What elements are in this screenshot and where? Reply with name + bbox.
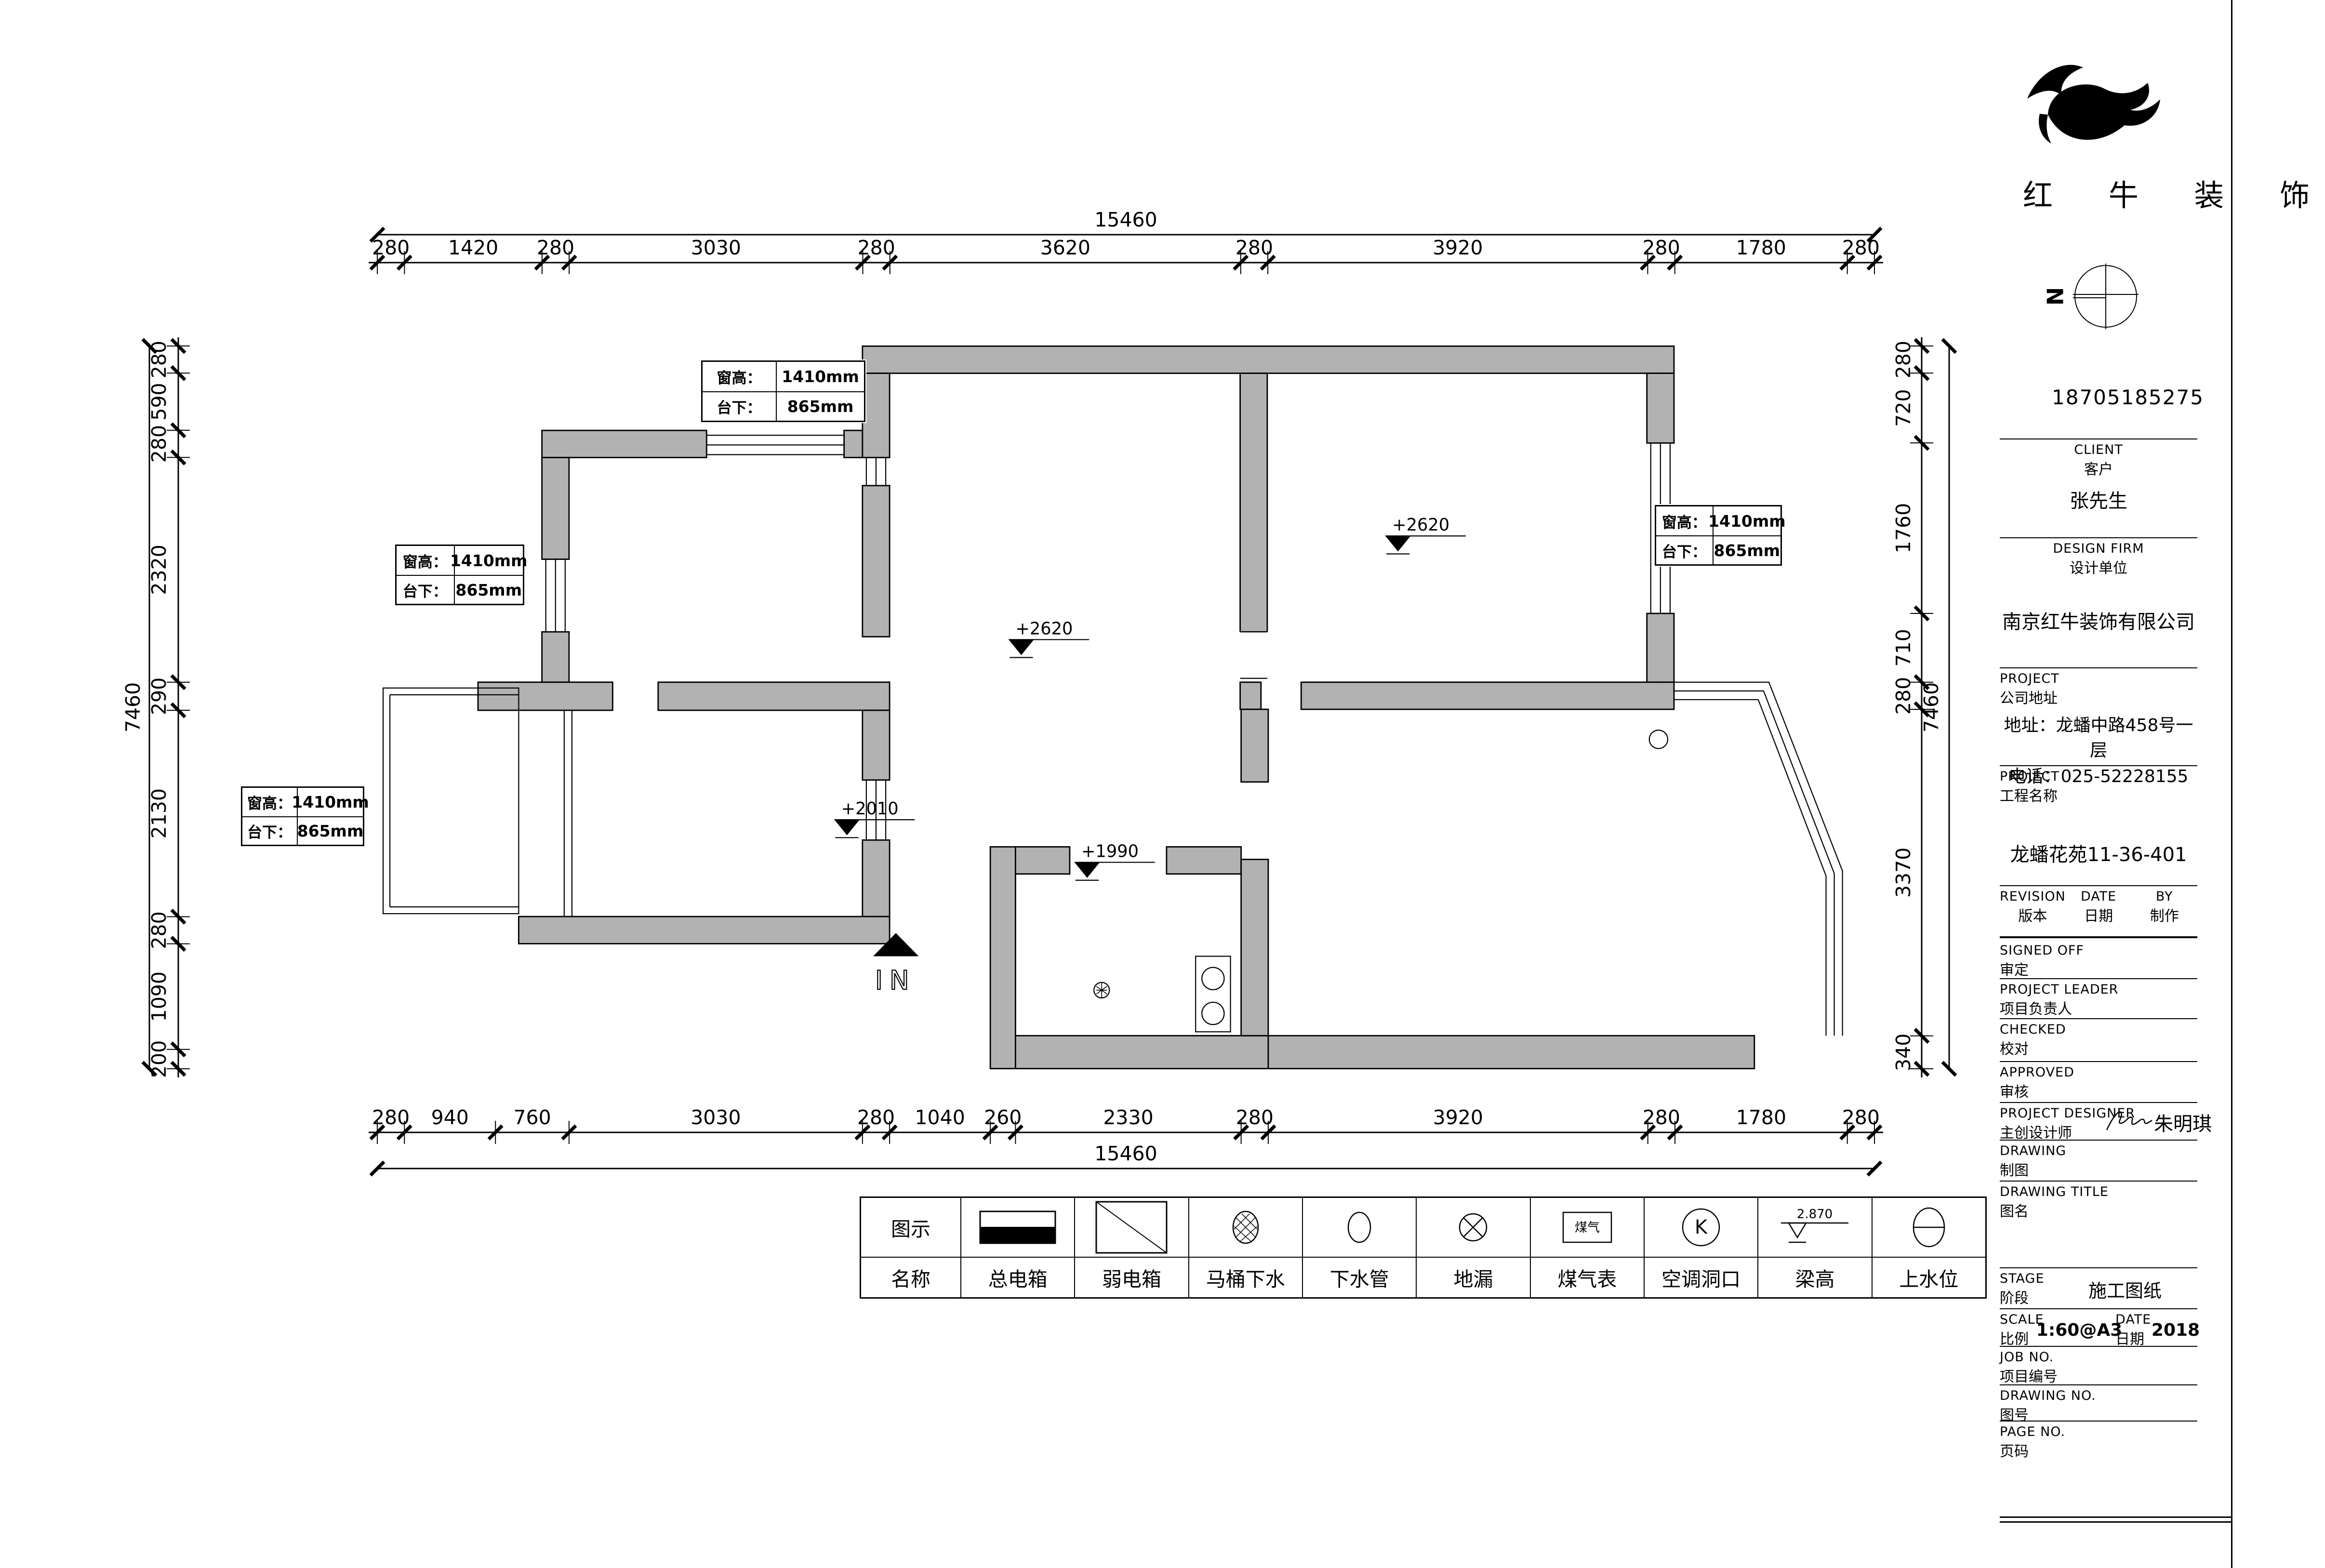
window-callout: 窗高：1410mm台下：865mm xyxy=(241,786,364,846)
titleblock-approved: APPROVED 审核 xyxy=(2000,1061,2197,1102)
dim-label: 280 xyxy=(1892,341,1915,378)
water-supply-icon xyxy=(1872,1198,1985,1257)
dim-label: 1420 xyxy=(448,236,498,259)
company-phone: 18705185275 xyxy=(2052,385,2204,409)
titleblock-job-no: JOB NO. 项目编号 xyxy=(2000,1346,2197,1384)
designer-signature xyxy=(2105,1106,2155,1135)
titleblock-checked: CHECKED 校对 xyxy=(2000,1018,2197,1061)
dim-label: 3370 xyxy=(1892,848,1915,898)
gas-meter-icon: 煤气 xyxy=(1530,1198,1644,1257)
legend-header-names: 名称 xyxy=(861,1257,960,1297)
dim-label: 3030 xyxy=(691,236,741,259)
sheet-right-border xyxy=(2231,0,2232,1568)
dim-label: 280 xyxy=(858,236,895,259)
svg-text:K: K xyxy=(1695,1216,1708,1238)
dim-label: 1780 xyxy=(1736,1106,1786,1129)
address-line1: 地址：龙蟠中路458号一层 xyxy=(2000,711,2197,761)
weak-electric-box-icon xyxy=(1074,1198,1188,1257)
dim-label: 2130 xyxy=(147,788,171,838)
titleblock-project-leader: PROJECT LEADER 项目负责人 xyxy=(2000,978,2197,1018)
titleblock-bottom-line xyxy=(2000,1516,2231,1518)
dim-label: 280 xyxy=(1842,1106,1880,1129)
dim-label: 3030 xyxy=(691,1106,741,1129)
window-callout: 窗高：1410mm台下：865mm xyxy=(1655,505,1782,566)
scale-value: 1:60@A3 xyxy=(2043,1312,2115,1348)
dim-label: 340 xyxy=(1892,1034,1915,1071)
callout-value: 865mm xyxy=(1714,536,1780,564)
callout-label: 台下： xyxy=(397,576,455,604)
callout-value: 865mm xyxy=(455,576,523,604)
dim-label: 290 xyxy=(147,678,171,715)
dim-label: 280 xyxy=(1643,1106,1680,1129)
dim-label: 280 xyxy=(1892,677,1915,715)
callout-label: 窗高： xyxy=(703,362,777,391)
dim-label: 1040 xyxy=(915,1106,965,1129)
north-letter: N xyxy=(2042,287,2068,306)
dim-label: 3920 xyxy=(1433,1106,1483,1129)
legend-item-name: 梁高 xyxy=(1757,1257,1871,1297)
design-firm-value: 南京红牛装饰有限公司 xyxy=(2000,606,2197,634)
dim-label: 280 xyxy=(1642,236,1680,259)
designer-name: 朱明琪 xyxy=(2154,1108,2212,1136)
dim-label: 3920 xyxy=(1433,236,1483,259)
dim-overall-label: 15460 xyxy=(1094,1142,1157,1165)
titleblock-scale-date: SCALE比例 1:60@A3 DATE日期 2018 xyxy=(2000,1308,2197,1346)
dim-label: 200 xyxy=(147,1040,171,1078)
svg-text:2.870: 2.870 xyxy=(1797,1207,1833,1222)
callout-value: 865mm xyxy=(777,392,864,421)
client-value: 张先生 xyxy=(2000,485,2197,513)
dim-label: 710 xyxy=(1892,629,1915,666)
callout-label: 台下： xyxy=(242,817,298,845)
callout-label: 窗高： xyxy=(397,546,455,575)
legend-header-icons: 图示 xyxy=(861,1198,960,1257)
titleblock-drawing-no: DRAWING NO. 图号 xyxy=(2000,1384,2197,1421)
dim-label: 720 xyxy=(1892,389,1915,427)
callout-value: 1410mm xyxy=(1714,506,1780,535)
callout-label: 窗高： xyxy=(1656,506,1714,535)
callout-label: 台下： xyxy=(703,392,777,421)
ac-hole-icon: K xyxy=(1644,1198,1757,1257)
titleblock-drawing: DRAWING 制图 xyxy=(2000,1140,2197,1181)
dim-label: 2330 xyxy=(1103,1106,1153,1129)
dim-overall-label: 15460 xyxy=(1094,208,1157,231)
drain-pipe-icon xyxy=(1302,1198,1416,1257)
project-name-value: 龙蟠花苑11-36-401 xyxy=(2000,839,2197,867)
dim-label: 280 xyxy=(1236,1106,1274,1129)
dim-label: 1090 xyxy=(147,971,171,1022)
dim-overall-label: 7460 xyxy=(1920,682,1943,732)
titleblock-page-no: PAGE NO. 页码 xyxy=(2000,1421,2197,1469)
dim-overall-label: 7460 xyxy=(121,682,145,732)
dim-label: 3620 xyxy=(1040,236,1090,259)
window-callout: 窗高：1410mm台下：865mm xyxy=(395,545,524,605)
titleblock-bottom-line2 xyxy=(2000,1521,2231,1523)
north-indicator-icon xyxy=(2072,263,2139,330)
dim-label: 1780 xyxy=(1736,236,1786,259)
callout-value: 1410mm xyxy=(777,362,864,391)
date-value: 2018 xyxy=(2154,1312,2197,1348)
callout-label: 台下： xyxy=(1656,536,1714,564)
dim-label: 940 xyxy=(431,1106,469,1129)
toilet-drain-icon xyxy=(1188,1198,1302,1257)
dim-label: 760 xyxy=(513,1106,551,1129)
floorplan-sheet: +2620+2620+2010+1990IN 15460280142028030… xyxy=(0,0,2325,1568)
dim-label: 280 xyxy=(147,911,171,949)
legend-item-name: 煤气表 xyxy=(1530,1257,1644,1297)
main-electric-box-icon xyxy=(960,1198,1074,1257)
legend-item-name: 空调洞口 xyxy=(1644,1257,1757,1297)
dim-label: 590 xyxy=(147,383,171,420)
callout-label: 窗高： xyxy=(242,788,298,816)
legend-item-name: 弱电箱 xyxy=(1074,1257,1188,1297)
dim-label: 1760 xyxy=(1892,503,1915,553)
legend-table: 图示煤气K2.870名称总电箱弱电箱马桶下水下水管地漏煤气表空调洞口梁高上水位 xyxy=(860,1196,1987,1299)
dim-label: 280 xyxy=(372,1106,410,1129)
callout-value: 865mm xyxy=(298,817,363,845)
legend-item-name: 地漏 xyxy=(1416,1257,1529,1297)
beam-height-icon: 2.870 xyxy=(1757,1198,1871,1257)
dim-label: 280 xyxy=(1842,236,1880,259)
dim-label: 280 xyxy=(372,236,410,259)
dim-label: 280 xyxy=(537,236,574,259)
dim-label: 280 xyxy=(857,1106,895,1129)
titleblock-client: CLIENT 客户 张先生 xyxy=(2000,439,2197,537)
floor-drain-icon xyxy=(1416,1198,1529,1257)
titleblock-project-name: PROJECT 工程名称 龙蟠花苑11-36-401 xyxy=(2000,765,2197,885)
titleblock-signed-off: SIGNED OFF 审定 xyxy=(2000,940,2197,978)
dim-label: 260 xyxy=(984,1106,1022,1129)
dim-label: 280 xyxy=(147,425,171,463)
callout-value: 1410mm xyxy=(298,788,363,816)
titleblock-revision-row: REVISION版本 DATE日期 BY制作 xyxy=(2000,885,2197,938)
titleblock-drawing-title: DRAWING TITLE 图名 xyxy=(2000,1181,2197,1267)
dim-label: 2320 xyxy=(147,545,171,595)
legend-item-name: 总电箱 xyxy=(960,1257,1074,1297)
legend-item-name: 马桶下水 xyxy=(1188,1257,1302,1297)
dimension-chains: 1546028014202803030280362028039202801780… xyxy=(0,0,2325,1568)
stage-value: 施工图纸 xyxy=(2053,1271,2197,1307)
company-logo-swoosh xyxy=(2021,53,2171,166)
titleblock-company-address: PROJECT 公司地址 地址：龙蟠中路458号一层 电话：025-522281… xyxy=(2000,667,2197,765)
callout-value: 1410mm xyxy=(455,546,523,575)
legend-item-name: 下水管 xyxy=(1302,1257,1416,1297)
dim-label: 280 xyxy=(1236,236,1273,259)
titleblock-design-firm: DESIGN FIRM 设计单位 南京红牛装饰有限公司 xyxy=(2000,537,2197,667)
dim-label: 280 xyxy=(147,341,171,378)
legend-item-name: 上水位 xyxy=(1872,1257,1985,1297)
company-name: 红 牛 装 饰 xyxy=(2000,171,2197,214)
svg-text:煤气: 煤气 xyxy=(1575,1221,1600,1235)
window-callout: 窗高：1410mm台下：865mm xyxy=(701,360,865,422)
titleblock-stage: STAGE阶段 施工图纸 xyxy=(2000,1267,2197,1308)
